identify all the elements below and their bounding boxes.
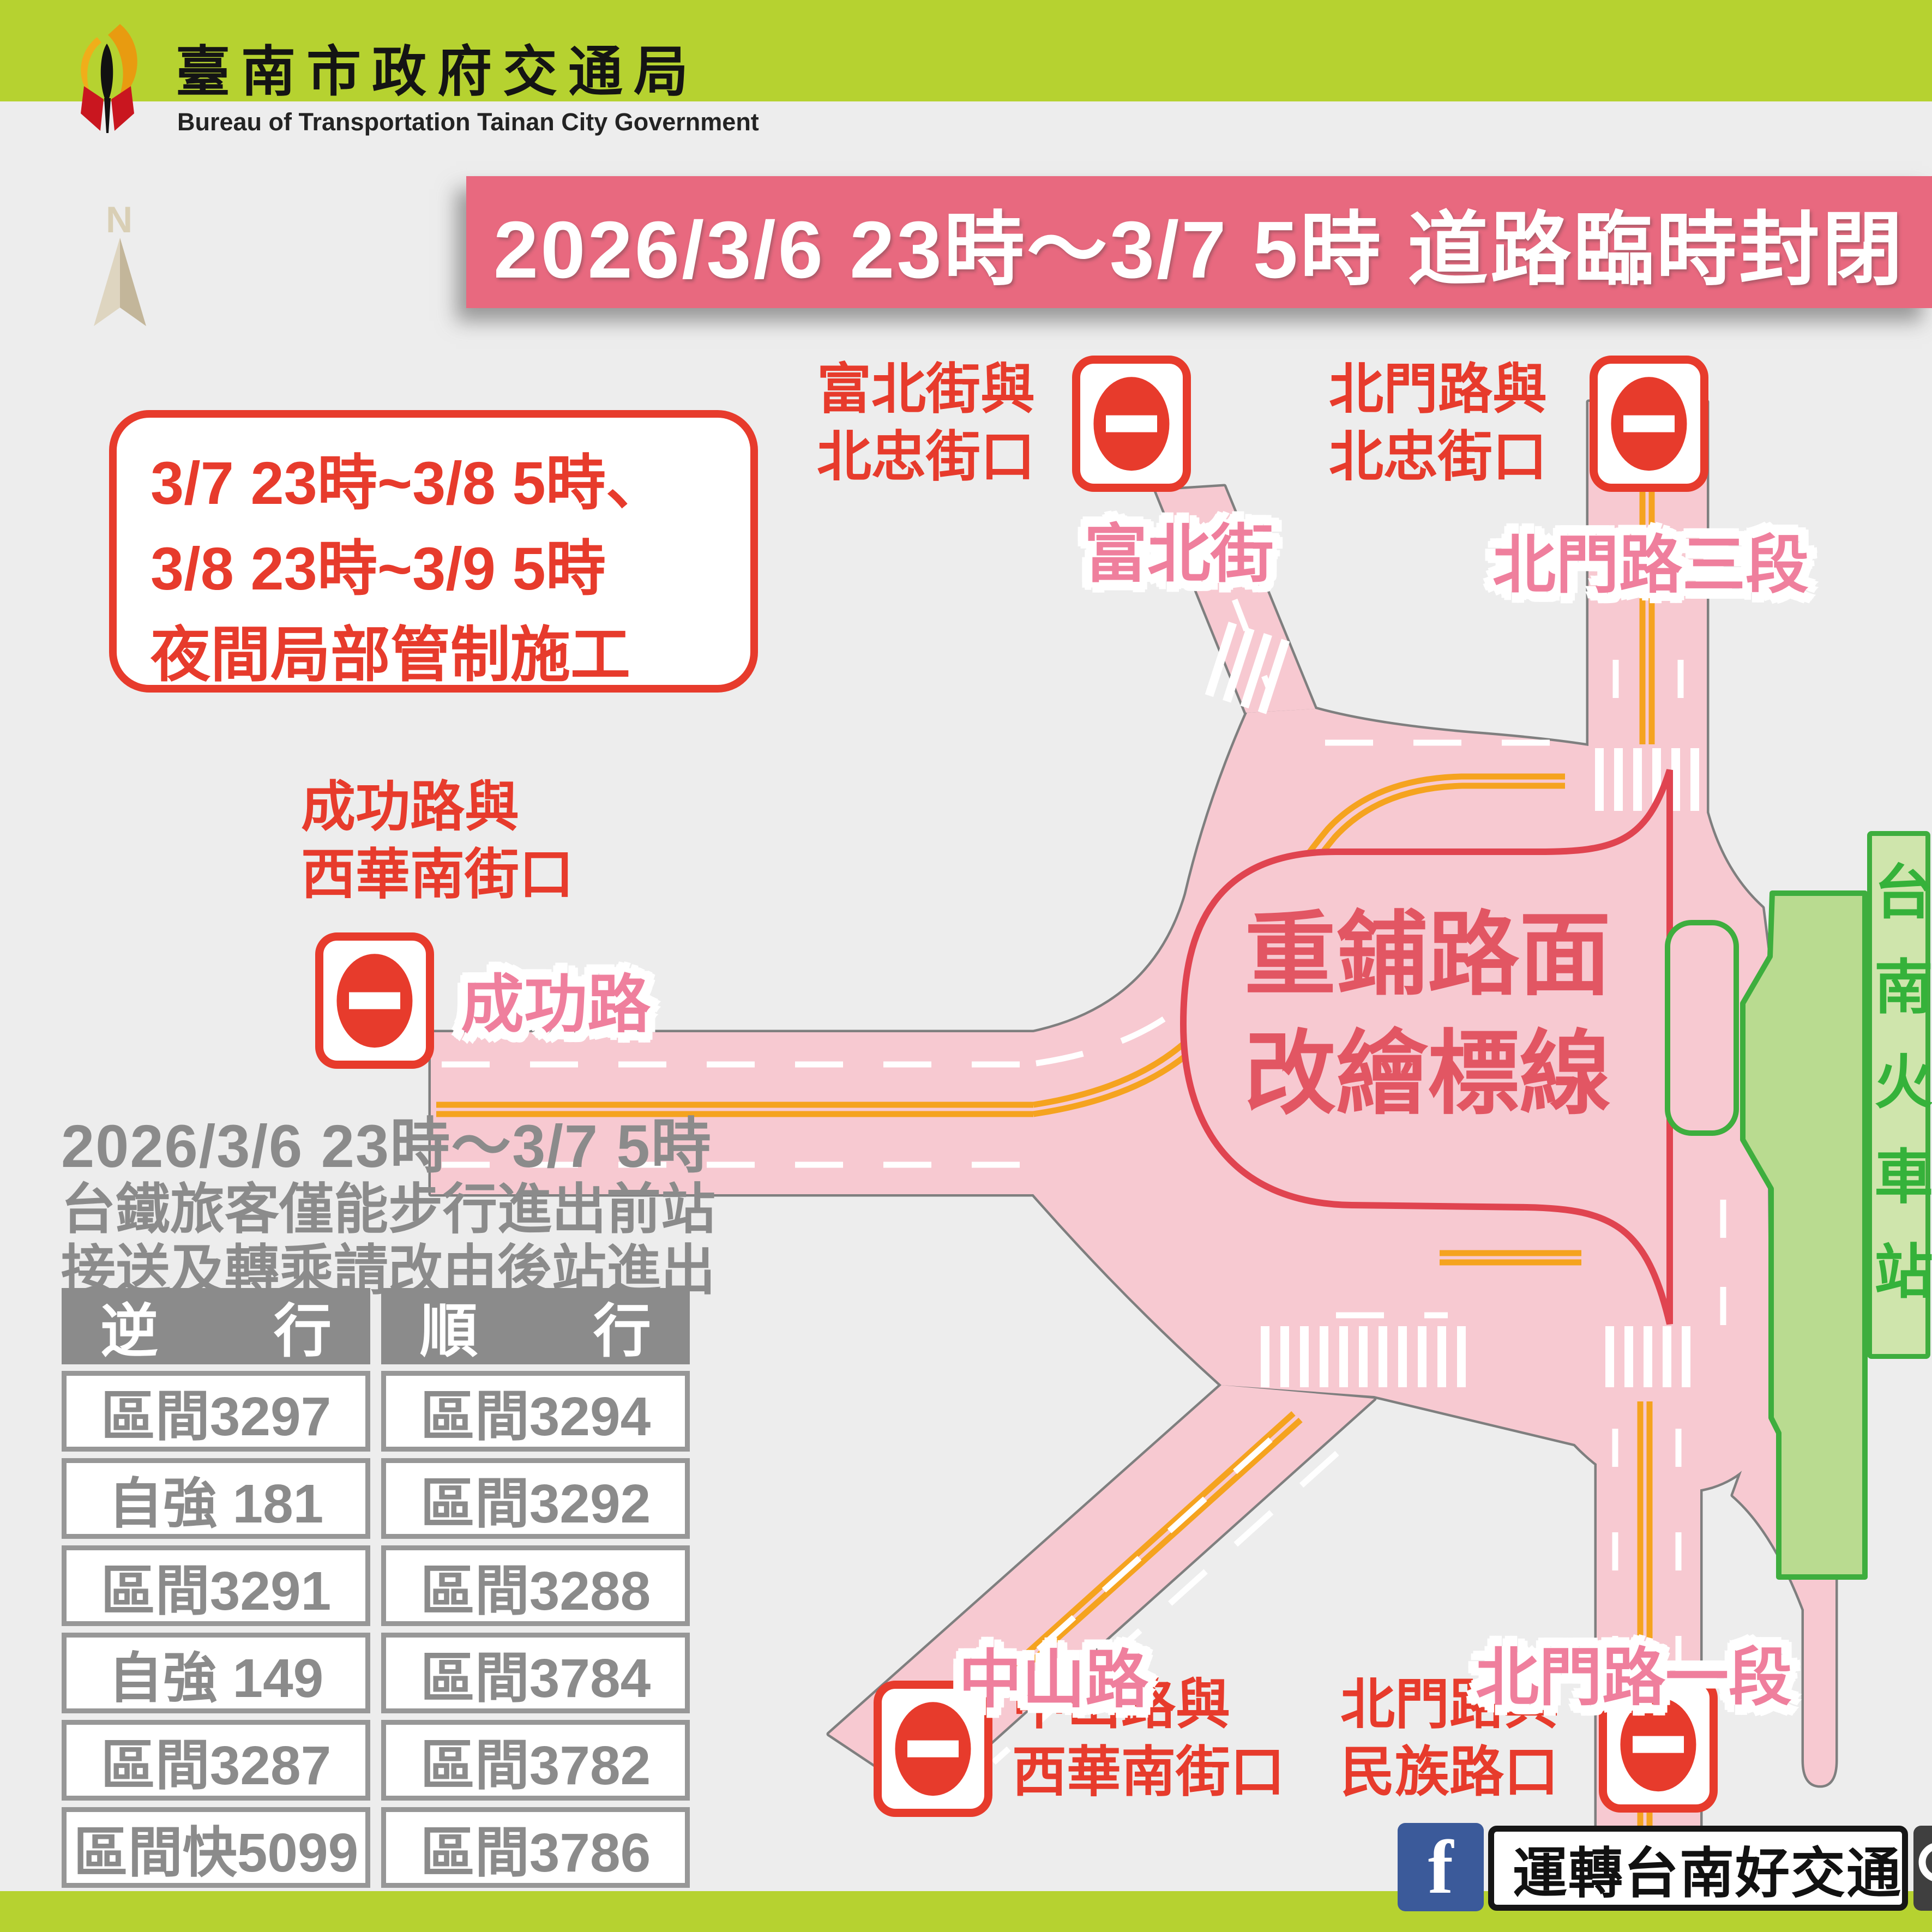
street-label-beimen-sec3: 北門路三段	[1492, 514, 1809, 605]
table-row: 自強 149	[62, 1633, 370, 1713]
street-label-chenggong: 成功路	[461, 953, 651, 1045]
station-label: 台南火車站	[1867, 831, 1930, 1359]
compass-north-label: N	[106, 198, 133, 241]
table-row: 區間3288	[381, 1545, 690, 1626]
train-table: 逆 行 區間3297 自強 181 區間3291 自強 149 區間3287 區…	[62, 1288, 690, 1894]
street-label-fubei: 富北街	[1084, 503, 1274, 594]
no-entry-sign-fubei	[1072, 356, 1191, 492]
compass-arrow-icon	[88, 237, 152, 328]
street-label-zhongshan: 中山路	[959, 1628, 1148, 1720]
facebook-search-bar[interactable]: 運轉台南好交通	[1488, 1826, 1906, 1911]
search-button[interactable]	[1913, 1826, 1932, 1911]
construction-zone-label: 重鋪路面 改繪標線	[1220, 895, 1635, 1134]
facebook-page-name: 運轉台南好交通	[1488, 1826, 1908, 1911]
table-row: 自強 181	[62, 1458, 370, 1539]
bureau-logo-icon	[50, 22, 165, 134]
closure-label-chenggong-xihuanan: 成功路與 西華南街口	[301, 773, 574, 908]
bureau-subtitle: Bureau of Transportation Tainan City Gov…	[177, 108, 759, 136]
table-header-reverse: 逆 行	[62, 1288, 370, 1364]
no-entry-bar	[1633, 1736, 1684, 1753]
table-header-forward: 順 行	[381, 1288, 690, 1364]
no-entry-sign-beimen-sec3	[1590, 356, 1708, 492]
bureau-title: 臺南市政府交通局	[176, 27, 699, 106]
table-row: 區間快5099	[62, 1807, 370, 1888]
closure-label-fubei-beizhong: 富北街與 北忠街口	[817, 356, 1035, 491]
facebook-icon[interactable]: f	[1398, 1823, 1484, 1911]
train-table-column-reverse: 逆 行 區間3297 自強 181 區間3291 自強 149 區間3287 區…	[62, 1288, 370, 1894]
table-row: 區間3784	[381, 1633, 690, 1713]
no-entry-bar	[1106, 416, 1157, 432]
night-works-notice: 3/7 23時~3/8 5時、 3/8 23時~3/9 5時 夜間局部管制施工	[109, 410, 758, 693]
table-row: 區間3786	[381, 1807, 690, 1888]
train-table-column-forward: 順 行 區間3294 區間3292 區間3288 區間3784 區間3782 區…	[381, 1288, 690, 1894]
no-entry-bar	[907, 1741, 959, 1758]
closure-banner: 2026/3/6 23時～3/7 5時 道路臨時封閉	[466, 176, 1932, 308]
table-row: 區間3297	[62, 1371, 370, 1452]
table-row: 區間3782	[381, 1720, 690, 1801]
table-row: 區間3294	[381, 1371, 690, 1452]
street-label-beimen-sec1: 北門路一段	[1476, 1626, 1792, 1718]
closure-label-beimen-beizhong: 北門路與 北忠街口	[1329, 356, 1547, 491]
table-row: 區間3292	[381, 1458, 690, 1539]
platform-island	[1668, 923, 1736, 1133]
no-entry-sign-chenggong	[315, 932, 434, 1069]
table-row: 區間3291	[62, 1545, 370, 1626]
table-row: 區間3287	[62, 1720, 370, 1801]
no-entry-bar	[1623, 416, 1675, 432]
road-closure-poster: 臺南市政府交通局 Bureau of Transportation Tainan…	[0, 0, 1932, 1932]
no-entry-bar	[349, 992, 400, 1009]
search-icon	[1913, 1838, 1932, 1898]
facebook-letter: f	[1428, 1823, 1454, 1911]
